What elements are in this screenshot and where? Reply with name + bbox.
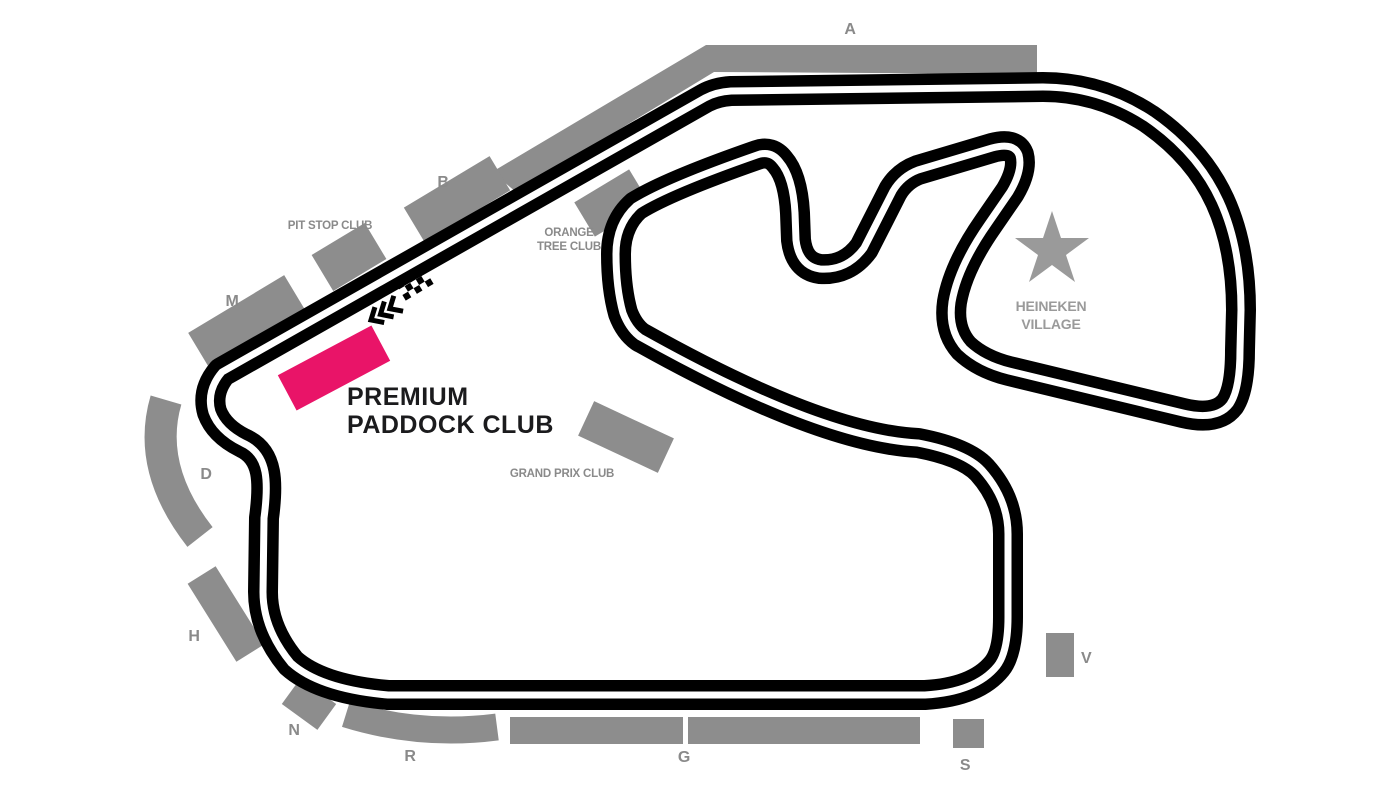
grand-prix-club-stand[interactable] xyxy=(578,401,674,473)
stand-r-label: R xyxy=(404,748,416,765)
stand-g-right[interactable] xyxy=(688,717,920,744)
stand-h-label: H xyxy=(188,628,199,645)
circuit-map: A B M D H N R G S V PIT STOP CLUB ORANGE… xyxy=(0,0,1400,801)
stand-a-label: A xyxy=(844,21,856,38)
pit-stop-club-label: PIT STOP CLUB xyxy=(288,220,373,232)
stand-g-label: G xyxy=(678,749,690,766)
stand-s-label: S xyxy=(960,757,971,774)
stand-m-label: M xyxy=(225,293,238,310)
stand-b-label: B xyxy=(437,174,448,191)
stand-v-label: V xyxy=(1081,650,1092,667)
stand-s[interactable] xyxy=(953,719,984,748)
stand-n-label: N xyxy=(288,722,299,739)
heineken-village-label-line2: VILLAGE xyxy=(1021,316,1080,332)
stand-d-label: D xyxy=(200,466,211,483)
orange-tree-club-label-line2: TREE CLUB xyxy=(537,241,601,253)
stand-v[interactable] xyxy=(1046,633,1074,677)
stand-r[interactable] xyxy=(346,714,497,730)
heineken-star-icon xyxy=(1015,211,1089,282)
stand-d[interactable] xyxy=(161,400,200,537)
stand-g-left[interactable] xyxy=(510,717,683,744)
orange-tree-club-label-line1: ORANGE xyxy=(544,227,594,239)
grand-prix-club-label: GRAND PRIX CLUB xyxy=(510,468,614,480)
heineken-village-label-line1: HEINEKEN xyxy=(1016,298,1087,314)
premium-paddock-club-label-line1: PREMIUM xyxy=(347,383,469,411)
premium-paddock-club-label-line2: PADDOCK CLUB xyxy=(347,411,554,439)
